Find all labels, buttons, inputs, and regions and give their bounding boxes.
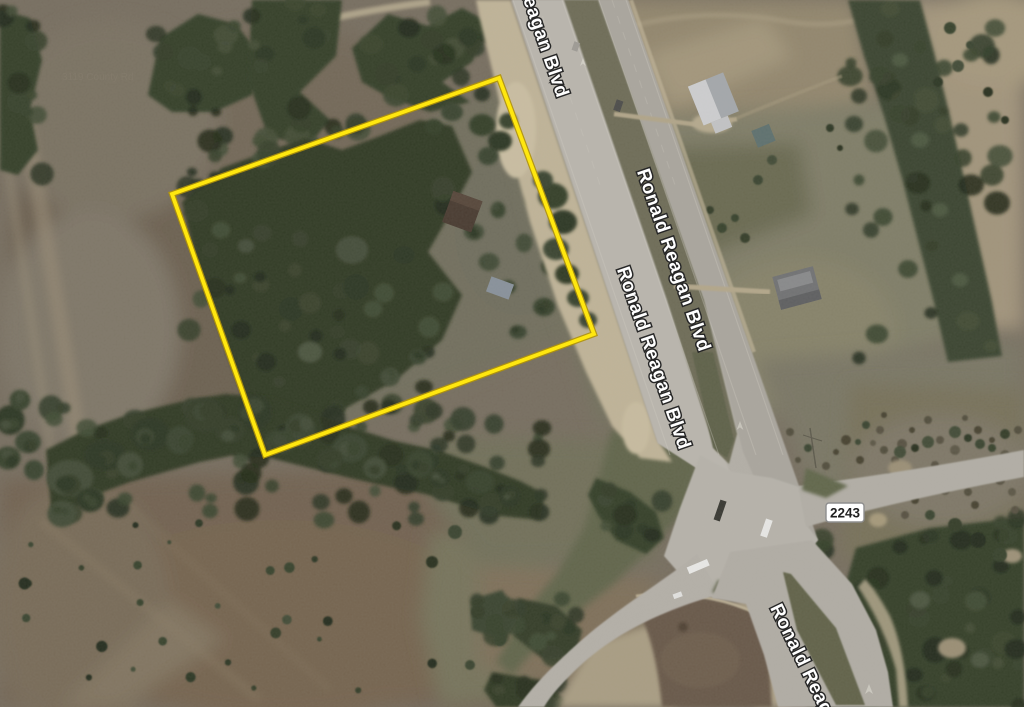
svg-text:3119 County Rd: 3119 County Rd [62, 72, 134, 83]
svg-text:2243: 2243 [830, 506, 861, 521]
